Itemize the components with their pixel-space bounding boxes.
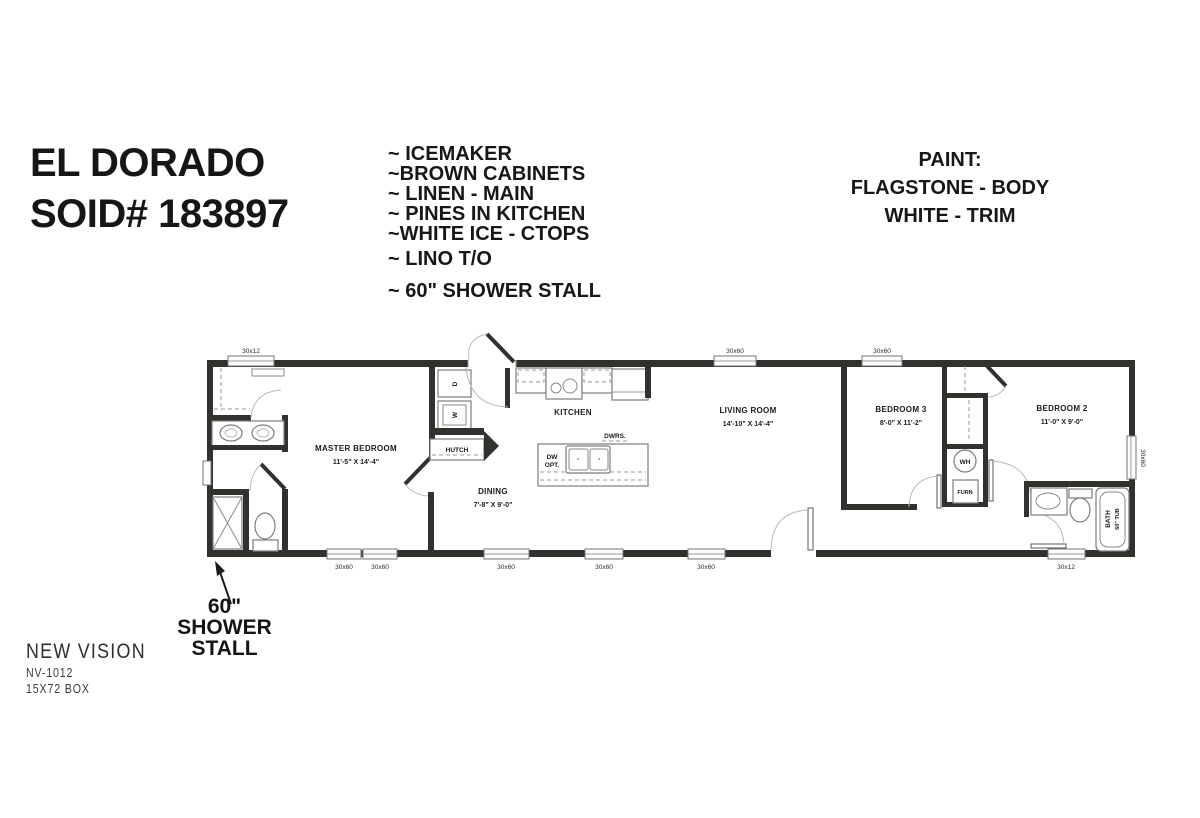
window-label: 30x60: [873, 348, 891, 355]
window-label: 30x60: [595, 564, 613, 571]
paint-body: FLAGSTONE - BODY: [845, 174, 1055, 202]
room-label-bedroom-3: BEDROOM 3: [875, 405, 926, 414]
room-label-living-room: LIVING ROOM: [719, 406, 776, 415]
drain: [577, 458, 579, 460]
dw-opt-label: DW: [547, 454, 559, 461]
shower-stall-callout: 60" SHOWER STALL: [172, 596, 277, 659]
bath-wall: [282, 489, 288, 550]
bathtub: [1096, 488, 1129, 551]
room-label-dining: DINING: [478, 487, 508, 496]
door-leaf: [808, 508, 813, 550]
vanity-wall: [210, 445, 286, 450]
plan-model-number: NV-1012: [26, 666, 146, 680]
closet-wall: [207, 415, 251, 421]
closet-wall: [942, 360, 947, 507]
door-swing-arc: [466, 367, 508, 407]
back-door-opening: [468, 358, 516, 368]
washer-label: W: [452, 411, 459, 418]
door-swing-arc: [771, 510, 808, 549]
interior-wall: [428, 492, 434, 550]
room-label-kitchen: KITCHEN: [554, 408, 592, 417]
bath-wall: [1024, 481, 1135, 487]
kitchen-counter: [516, 368, 546, 393]
window-label: 30x12: [242, 348, 260, 355]
furnace-label: FURN: [957, 490, 972, 496]
plan-box-size: 15X72 BOX: [26, 682, 146, 696]
dryer-label: D: [452, 381, 459, 386]
door-leaf: [487, 334, 514, 362]
door-leaf: [989, 460, 993, 501]
interior-wall: [841, 504, 917, 510]
closet-wall: [942, 393, 988, 398]
water-heater-label: WH: [960, 459, 971, 466]
closet-wall: [983, 393, 988, 507]
model-number: SOID# 183897: [30, 189, 289, 240]
hutch-cap: [484, 431, 499, 461]
shower-wall: [207, 489, 249, 495]
door-swing-arc: [405, 484, 428, 496]
bath-label: BATH: [1105, 510, 1112, 528]
callout-line: STALL: [172, 638, 277, 659]
laundry-wall: [429, 428, 484, 435]
sink: [220, 425, 242, 441]
kitchen-counter: [582, 368, 612, 393]
front-door-opening: [771, 550, 816, 557]
brand-name: NEW VISION: [26, 640, 146, 664]
door-leaf: [405, 457, 431, 484]
door-leaf: [261, 464, 285, 489]
floor-plan-sheet: D W HUTCH DW OPT.: [0, 0, 1200, 818]
door-swing-arc: [909, 476, 939, 507]
outer-wall-top: [207, 360, 1135, 367]
closet-wall: [942, 444, 988, 449]
floor-plan-drawing: D W HUTCH DW OPT.: [0, 0, 1200, 818]
refrigerator: [612, 369, 648, 400]
window: [203, 461, 211, 485]
window-label: 30x60: [335, 564, 353, 571]
door-swing-arc: [469, 334, 487, 360]
room-label-bedroom-2: BEDROOM 2: [1036, 404, 1087, 413]
window-label: 30x12: [1057, 564, 1075, 571]
feature-item: ~ PINES IN KITCHEN: [388, 204, 601, 224]
toilet: [255, 513, 275, 539]
paint-heading: PAINT:: [845, 146, 1055, 174]
features-list: ~ ICEMAKER ~BROWN CABINETS ~ LINEN - MAI…: [388, 144, 601, 301]
feature-item: ~WHITE ICE - CTOPS: [388, 224, 601, 244]
room-dims-master-bedroom: 11'-5" X 14'-4": [333, 459, 379, 466]
window-label: 30x60: [497, 564, 515, 571]
room-dims-bedroom-2: 11'-0" X 9'-0": [1041, 419, 1083, 426]
feature-item: ~ LINEN - MAIN: [388, 184, 601, 204]
toilet-tank: [1069, 489, 1092, 498]
sink: [252, 425, 274, 441]
room-dims-dining: 7'-8" X 9'-0": [474, 502, 513, 509]
door-leaf: [505, 363, 510, 408]
plan-title: EL DORADO SOID# 183897: [30, 138, 289, 240]
feature-item: ~ LINO T/O: [388, 249, 601, 269]
door-swing-arc: [251, 390, 281, 418]
callout-arrow-head: [215, 561, 225, 576]
door-leaf: [1031, 544, 1066, 548]
toilet: [1070, 498, 1090, 522]
shower-wall: [243, 489, 249, 557]
feature-item: ~ ICEMAKER: [388, 144, 601, 164]
outer-wall-left: [207, 360, 213, 557]
callout-line: SHOWER: [172, 617, 277, 638]
paint-spec: PAINT: FLAGSTONE - BODY WHITE - TRIM: [845, 146, 1055, 230]
bath-wall: [1024, 481, 1029, 517]
window-label: 30x60: [726, 348, 744, 355]
door-swing-arc: [250, 464, 261, 491]
feature-item: ~BROWN CABINETS: [388, 164, 601, 184]
feature-item: ~ 60" SHOWER STALL: [388, 281, 601, 301]
window-label: 30x60: [697, 564, 715, 571]
room-label-master-bedroom: MASTER BEDROOM: [315, 444, 397, 453]
model-name: EL DORADO: [30, 138, 289, 189]
window-label: 30x60: [371, 564, 389, 571]
tub-label: 60" TUB: [1115, 508, 1121, 530]
wall-stub: [645, 360, 651, 398]
door-swing-arc: [989, 386, 1006, 397]
door-swing-arc: [1030, 512, 1064, 544]
paint-trim: WHITE - TRIM: [845, 202, 1055, 230]
title-block: NEW VISION NV-1012 15X72 BOX: [26, 640, 146, 696]
window-label: 30x60: [1139, 449, 1146, 467]
toilet-tank: [253, 540, 278, 551]
room-dims-bedroom-3: 8'-0" X 11'-2": [880, 420, 922, 427]
door-leaf: [937, 475, 941, 508]
room-dims-living-room: 14'-10" X 14'-4": [723, 421, 773, 428]
closet-shelf: [252, 369, 284, 376]
callout-line: 60": [172, 596, 277, 617]
drawers-label: DWRS.: [604, 433, 626, 440]
dw-opt-label: OPT.: [545, 462, 560, 469]
interior-wall: [841, 360, 847, 510]
hutch-label: HUTCH: [446, 447, 469, 454]
door-leaf: [987, 366, 1006, 386]
drain: [598, 458, 600, 460]
